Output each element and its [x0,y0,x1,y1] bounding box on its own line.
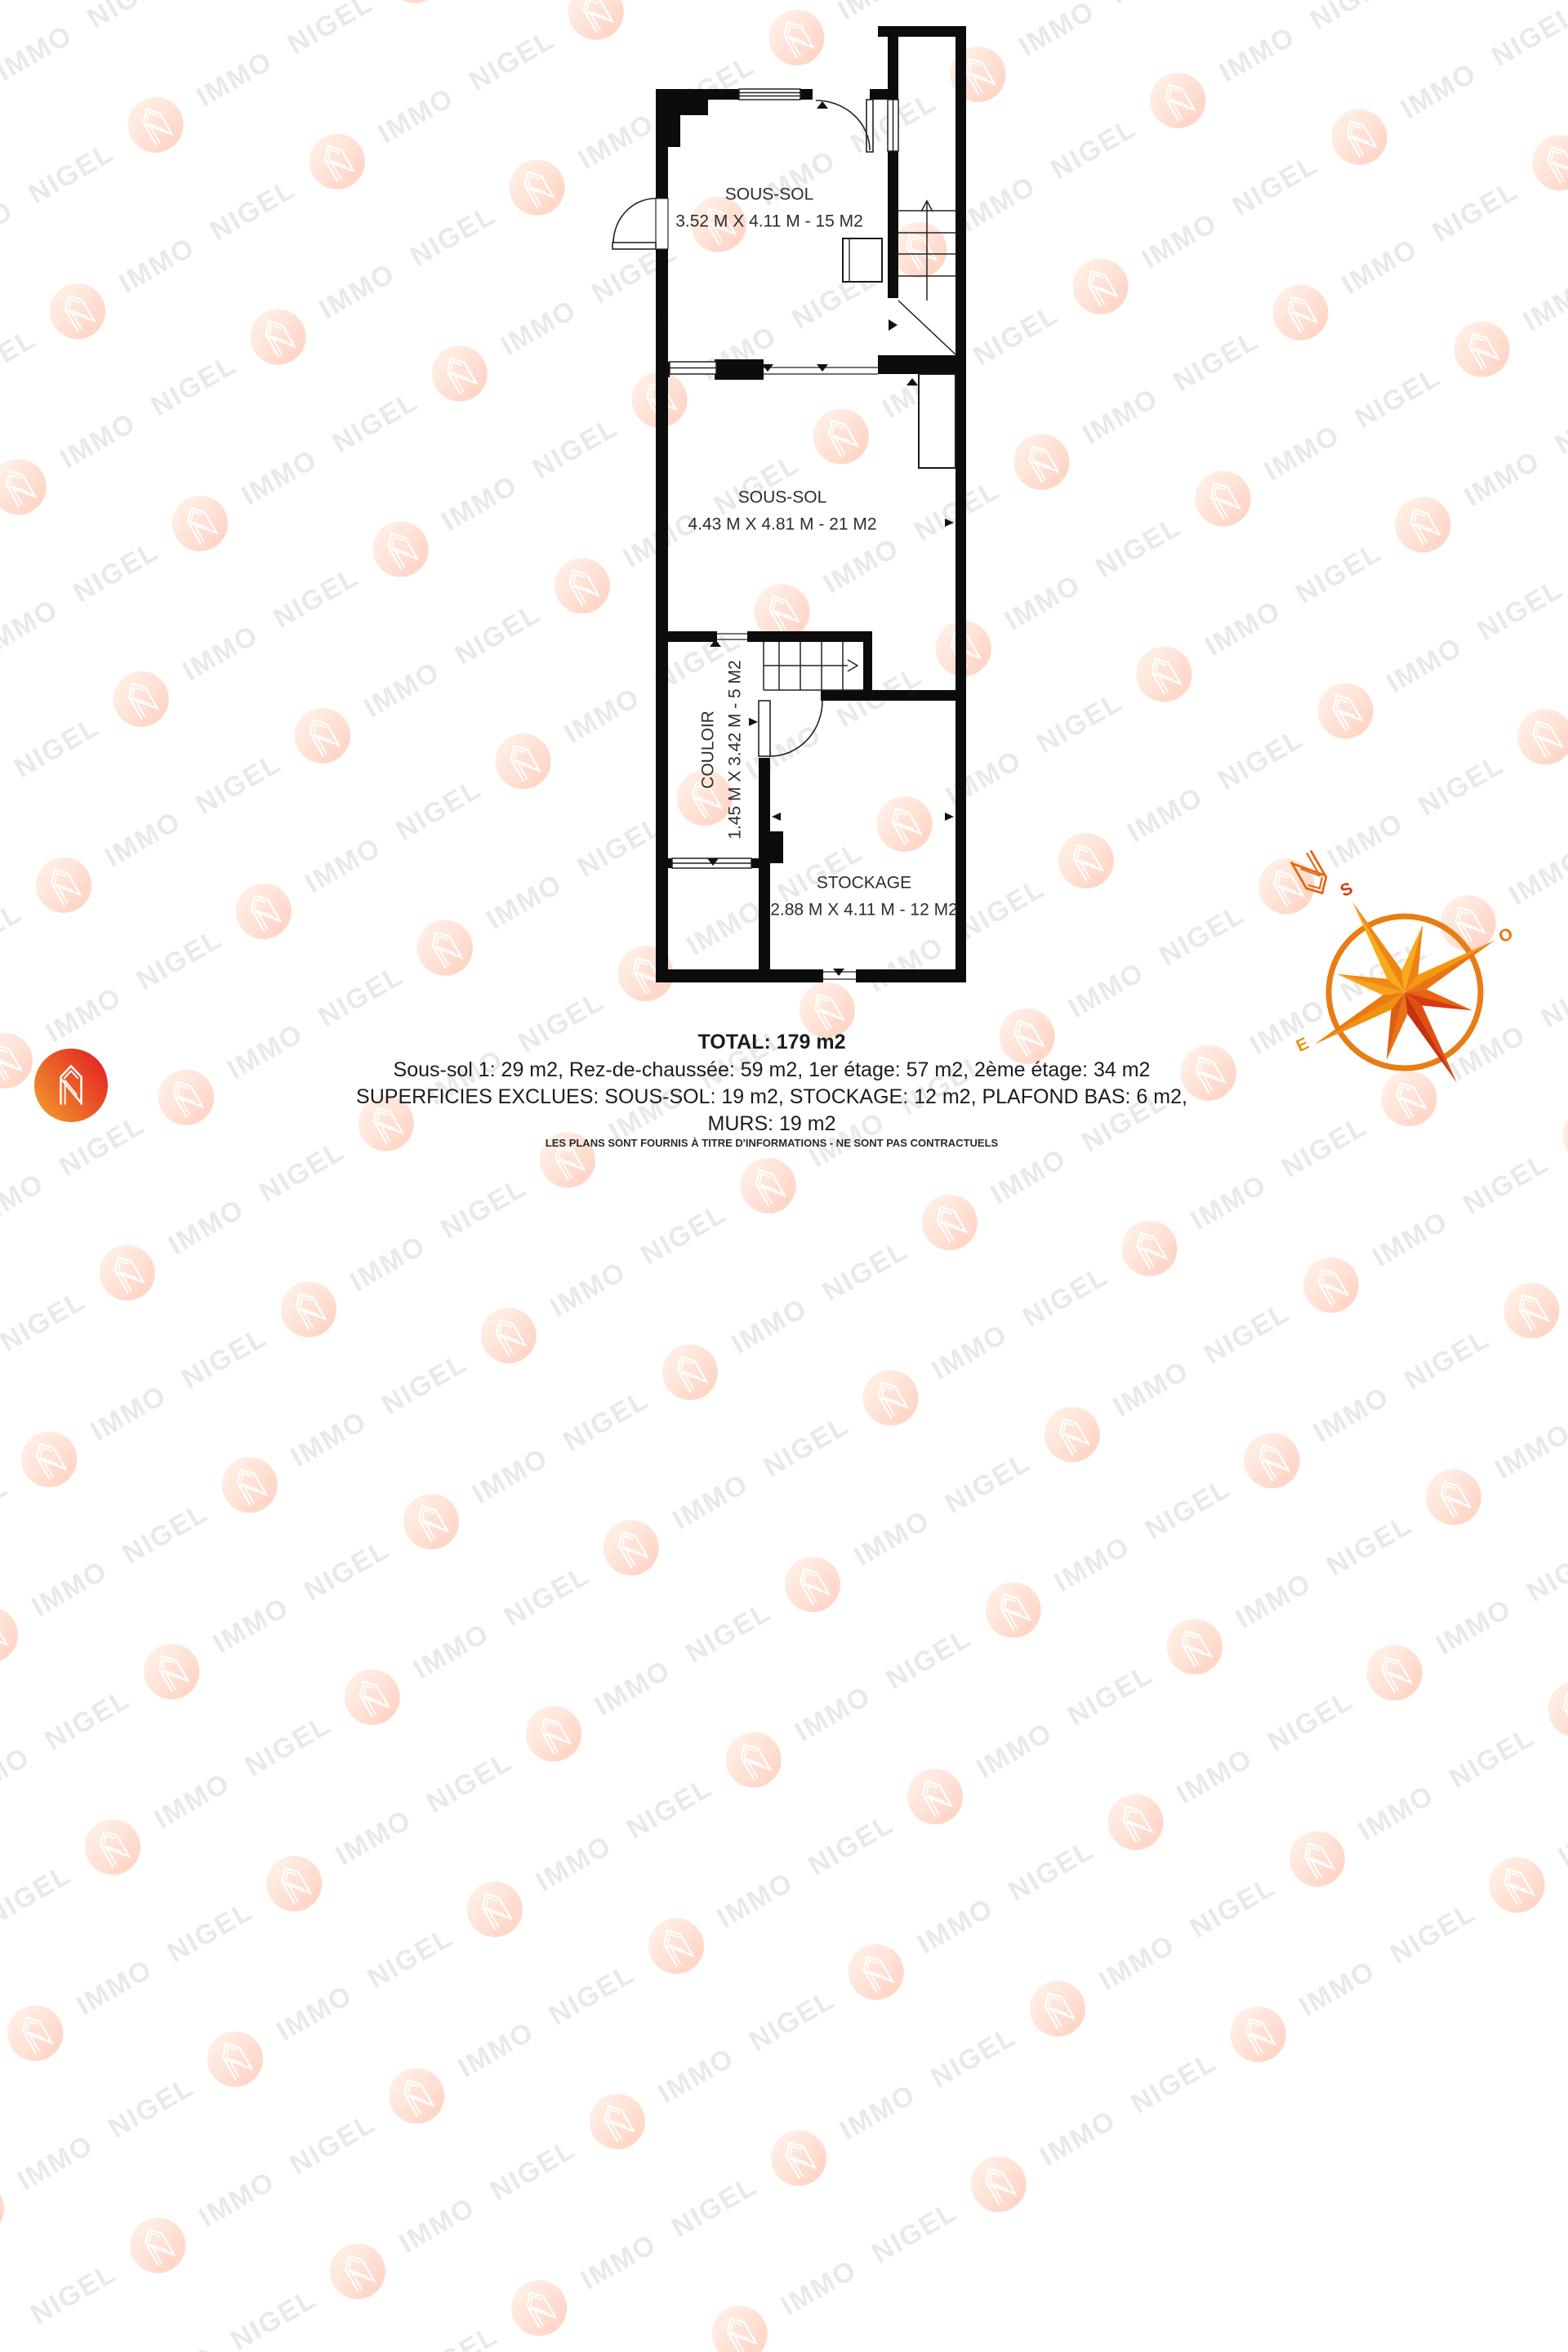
watermark-logo-icon [11,1421,87,1497]
watermark-logo-icon [212,1447,287,1523]
room-name: STOCKAGE [770,874,958,893]
area-summary: TOTAL: 179 m2 Sous-sol 1: 29 m2, Rez-de-… [356,1031,1187,1139]
watermark-logo-icon [702,2296,777,2352]
watermark-logo-icon [379,2058,455,2134]
watermark-logo-icon [515,1696,591,1772]
room-label-sous-sol-2: SOUS-SOL 4.43 M X 4.81 M - 21 M2 [688,488,876,535]
tower-staircase [898,201,955,354]
watermark-logo-icon [1234,1423,1310,1499]
watermark-logo-icon [471,1298,547,1374]
watermark-logo-icon [334,1659,410,1735]
watermark-logo-icon [134,1633,210,1709]
watermark-logo-icon [0,1597,29,1673]
watermark-logo-icon [975,1572,1051,1648]
watermark-logo-icon [911,1184,987,1260]
room-name: COULOIR [699,660,719,839]
room-dims: 2.88 M X 4.11 M - 12 M2 [770,901,958,920]
room-dims: 4.43 M X 4.81 M - 21 M2 [688,515,876,535]
watermark-logo-icon [75,1809,151,1885]
floor-areas: Sous-sol 1: 29 m2, Rez-de-chaussée: 59 m… [356,1058,1187,1082]
watermark-logo-icon [320,2234,396,2310]
watermark-logo-icon [1020,1971,1096,2047]
watermark-logo-icon [839,1934,915,2010]
logo-n-house-icon [52,1062,90,1108]
disclaimer-text: LES PLANS SONT FOURNIS À TITRE D'INFORMA… [546,1137,998,1149]
room-name: SOUS-SOL [688,488,876,508]
room-label-stockage: STOCKAGE 2.88 M X 4.11 M - 12 M2 [770,874,958,920]
watermark-logo-icon [256,1846,332,1922]
watermark-logo-icon [89,1235,165,1311]
watermark-logo-icon [0,1995,73,2071]
watermark-logo-icon [1293,1247,1369,1323]
watermark-logo-icon [760,2120,836,2196]
watermark-logo-icon [1494,1273,1568,1349]
watermark-logo-icon [270,1272,346,1347]
nigel-immo-logo [34,1049,108,1122]
watermark-logo-icon [120,2207,196,2283]
watermark-logo-icon [853,1360,929,1436]
watermark-logo-icon [1156,1609,1232,1685]
excluded-areas: SUPERFICIES EXCLUES: SOUS-SOL: 19 m2, ST… [356,1085,1187,1109]
watermark-logo-icon [716,1722,792,1797]
watermark-logo-icon [1111,1210,1187,1286]
watermark-logo-icon [1479,1847,1555,1923]
compass-rose: S O E [1290,849,1535,1160]
plan-fixtures [843,238,955,468]
room-label-couloir: COULOIR 1.45 M X 3.42 M - 5 M2 [699,660,746,839]
watermark-logo-icon [1538,1672,1568,1748]
watermark-logo-icon [1034,1396,1110,1472]
watermark-logo-icon [457,1872,532,1948]
watermark-logo-icon [775,1546,851,1622]
walls-area: MURS: 19 m2 [356,1112,1187,1136]
watermark-logo-icon [579,2083,655,2159]
room-label-sous-sol-1: SOUS-SOL 3.52 M X 4.11 M - 15 M2 [675,185,863,232]
watermark-logo-icon [1279,1821,1355,1897]
total-area: TOTAL: 179 m2 [356,1031,1187,1054]
room-dims: 1.45 M X 3.42 M - 5 M2 [726,660,746,839]
watermark-logo-icon [1220,1997,1296,2073]
watermark-logo-icon [1415,1459,1491,1535]
watermark-logo-icon [898,1758,973,1834]
watermark-logo-icon [393,1484,469,1560]
watermark-logo-icon [1098,1784,1174,1860]
watermark-logo-icon [0,2171,14,2247]
watermark-logo-icon [961,2146,1037,2222]
watermark-logo-icon [198,2021,274,2097]
watermark-logo-icon [501,2270,577,2346]
watermark-logo-icon [1356,1635,1432,1711]
watermark-logo-icon [594,1510,670,1586]
room-name: SOUS-SOL [675,185,863,205]
room-dims: 3.52 M X 4.11 M - 15 M2 [675,212,863,232]
corridor-staircase [764,642,863,690]
watermark-logo-icon [638,1909,714,1984]
watermark-logo-icon [653,1334,728,1410]
